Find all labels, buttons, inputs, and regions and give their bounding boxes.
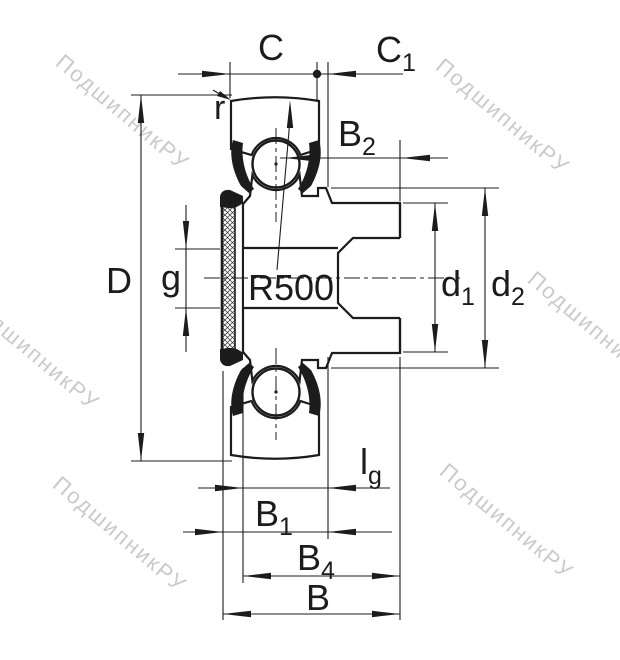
flinger-top-cap	[220, 190, 243, 208]
radius-label-R500: R500	[248, 267, 334, 308]
dim-label-C: C	[258, 27, 284, 68]
technical-drawing-page: ПодшипникРУ ПодшипникРУ ПодшипникРУ Подш…	[0, 0, 620, 660]
dim-label-d1: d1	[441, 263, 475, 311]
seal-top-right	[298, 140, 321, 193]
watermark-text: ПодшипникРУ	[523, 266, 620, 392]
watermark-text: ПодшипникРУ	[435, 458, 579, 584]
dim-label-g: g	[161, 257, 181, 298]
seal-top-left	[231, 140, 254, 193]
dim-label-r: r	[214, 89, 225, 127]
watermark-text: ПодшипникРУ	[48, 471, 192, 597]
dim-label-D: D	[106, 260, 132, 301]
dim-label-B1: B1	[255, 493, 293, 541]
dim-label-d2: d2	[491, 263, 525, 311]
watermark-layer: ПодшипникРУ ПодшипникРУ ПодшипникРУ Подш…	[0, 49, 620, 597]
seal-bottom-right	[298, 363, 321, 416]
dim-label-B: B	[306, 577, 330, 618]
watermark-text: ПодшипникРУ	[51, 49, 195, 175]
dim-label-B2: B2	[338, 113, 376, 161]
dim-common-point-dot	[313, 70, 321, 78]
watermark-text: ПодшипникРУ	[0, 289, 105, 415]
label-layer: C C1 r B2 D g R500 d1 d2 lg B1 B4 B	[106, 27, 525, 618]
flinger-bottom-cap	[220, 348, 243, 366]
dim-label-lg: lg	[360, 441, 382, 490]
dim-label-C1: C1	[376, 29, 416, 77]
bearing-drawing: ПодшипникРУ ПодшипникРУ ПодшипникРУ Подш…	[0, 0, 620, 660]
watermark-text: ПодшипникРУ	[431, 53, 575, 179]
